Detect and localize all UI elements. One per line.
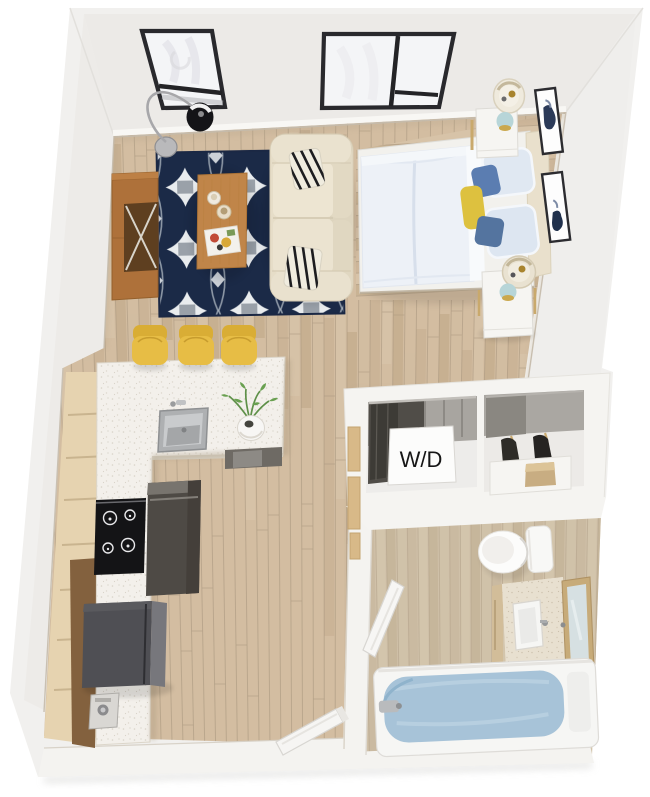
svg-text:W/D: W/D [400,447,443,472]
